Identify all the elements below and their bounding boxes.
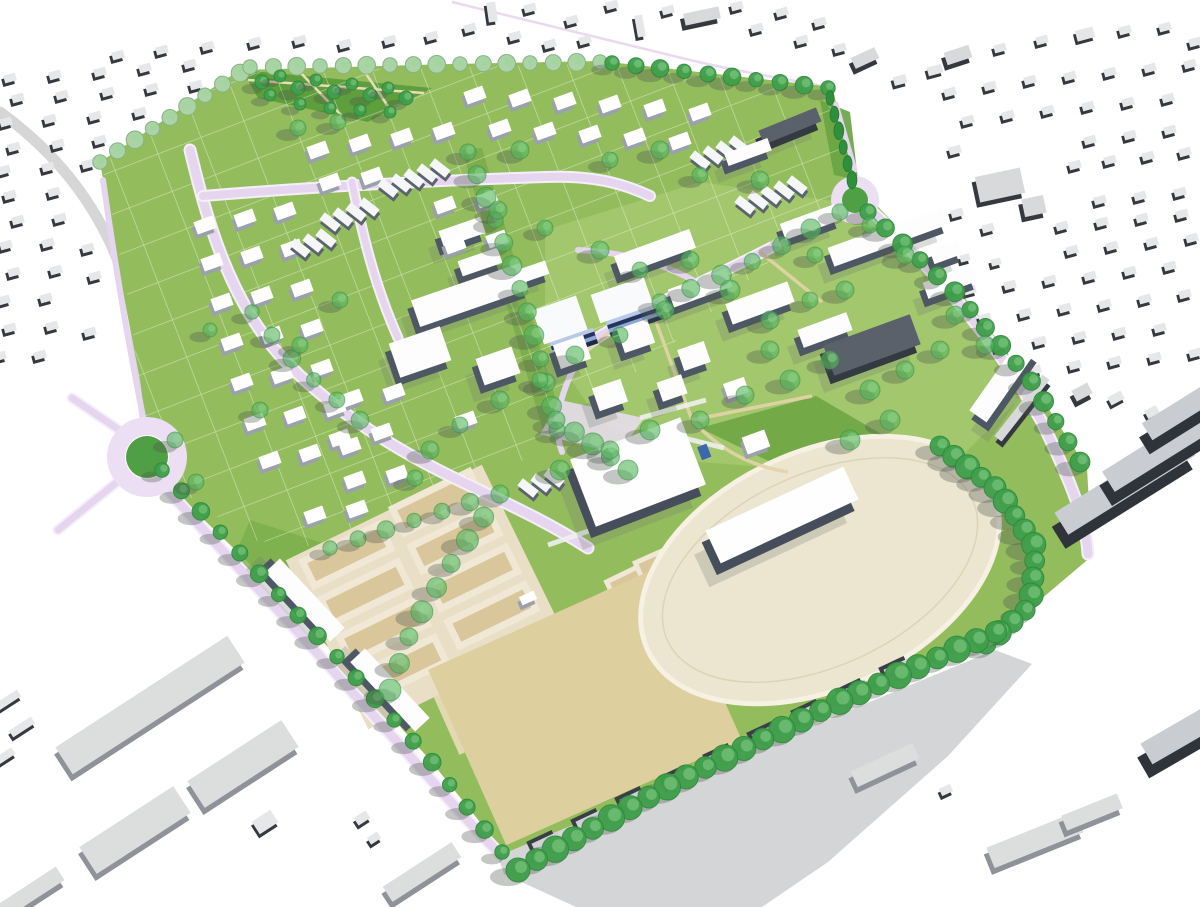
building-block bbox=[520, 3, 537, 17]
building-block bbox=[727, 1, 744, 15]
building-block bbox=[483, 1, 498, 25]
masterplan-svg-canvas bbox=[0, 0, 1200, 907]
building-block bbox=[978, 223, 995, 237]
building-block bbox=[364, 831, 382, 848]
building-block bbox=[0, 867, 67, 907]
building-block bbox=[1132, 696, 1200, 779]
building-block bbox=[36, 293, 53, 307]
building-block bbox=[1160, 125, 1177, 139]
building-block bbox=[505, 31, 522, 45]
building-block bbox=[958, 115, 975, 129]
building-block bbox=[810, 17, 827, 31]
building-block bbox=[1092, 217, 1109, 231]
building-block bbox=[1100, 155, 1117, 169]
building-block bbox=[658, 5, 675, 19]
building-block bbox=[936, 784, 954, 800]
building-block bbox=[1068, 382, 1095, 407]
building-block bbox=[152, 45, 169, 59]
building-block bbox=[1120, 266, 1137, 280]
building-block bbox=[78, 243, 95, 257]
building-block bbox=[1132, 213, 1149, 227]
building-block bbox=[1100, 67, 1117, 81]
building-block bbox=[245, 37, 262, 51]
building-block bbox=[1065, 360, 1082, 374]
building-block bbox=[1070, 331, 1087, 345]
aerial-masterplan-render bbox=[0, 0, 1200, 907]
building-block bbox=[85, 111, 102, 125]
building-block bbox=[1170, 187, 1187, 201]
building-block bbox=[46, 265, 63, 279]
building-block bbox=[7, 717, 37, 742]
building-block bbox=[1095, 299, 1112, 313]
building-block bbox=[0, 747, 17, 769]
building-block bbox=[575, 35, 592, 49]
building-block bbox=[1057, 793, 1125, 837]
building-block bbox=[351, 810, 372, 829]
building-block bbox=[945, 145, 962, 159]
building-block bbox=[1055, 303, 1072, 317]
building-block bbox=[4, 267, 21, 281]
building-block bbox=[142, 83, 159, 97]
building-block bbox=[45, 70, 62, 84]
building-block bbox=[971, 168, 1026, 208]
building-block bbox=[0, 323, 17, 337]
building-block bbox=[38, 238, 55, 252]
building-block bbox=[1080, 271, 1097, 285]
building-block bbox=[1038, 105, 1055, 119]
building-block bbox=[998, 110, 1015, 124]
building-block bbox=[940, 87, 957, 101]
building-block bbox=[1040, 275, 1057, 289]
building-block bbox=[249, 810, 280, 839]
building-block bbox=[679, 6, 722, 30]
building-block bbox=[422, 31, 439, 45]
building-block bbox=[1175, 289, 1192, 303]
building-block bbox=[85, 271, 102, 285]
building-block bbox=[1052, 221, 1069, 235]
building-block bbox=[1072, 26, 1096, 45]
building-block bbox=[1180, 59, 1197, 73]
building-block bbox=[379, 842, 465, 907]
building-block bbox=[1182, 233, 1199, 247]
building-block bbox=[1160, 261, 1177, 275]
building-block bbox=[1155, 22, 1172, 36]
building-block bbox=[1015, 308, 1032, 322]
building-block bbox=[1030, 336, 1047, 350]
building-block bbox=[1078, 101, 1095, 115]
building-block bbox=[51, 636, 247, 782]
building-block bbox=[0, 240, 14, 254]
building-block bbox=[90, 135, 107, 149]
building-block bbox=[631, 14, 646, 40]
building-block bbox=[0, 190, 17, 204]
building-block bbox=[198, 41, 215, 55]
building-block bbox=[1175, 147, 1192, 161]
building-block bbox=[772, 7, 789, 21]
building-block bbox=[1130, 191, 1147, 205]
building-block bbox=[0, 351, 8, 365]
building-block bbox=[460, 23, 477, 37]
building-block bbox=[1032, 35, 1049, 49]
building-block bbox=[562, 15, 579, 29]
building-block bbox=[0, 73, 17, 87]
building-block bbox=[183, 720, 301, 815]
building-block bbox=[1145, 352, 1162, 366]
building-block bbox=[924, 64, 944, 80]
building-block bbox=[1110, 327, 1127, 341]
building-block bbox=[90, 67, 107, 81]
building-block bbox=[540, 39, 557, 53]
building-block bbox=[1065, 160, 1082, 174]
building-block bbox=[602, 0, 619, 14]
building-block bbox=[1020, 75, 1037, 89]
building-block bbox=[130, 107, 147, 121]
building-block bbox=[80, 327, 97, 341]
building-block bbox=[1150, 323, 1167, 337]
building-block bbox=[792, 35, 809, 49]
building-block bbox=[0, 690, 23, 715]
building-block bbox=[990, 43, 1007, 57]
building-block bbox=[988, 257, 1003, 270]
building-block bbox=[1135, 294, 1152, 308]
building-block bbox=[947, 208, 964, 222]
building-block bbox=[940, 45, 974, 71]
building-block bbox=[1102, 241, 1119, 255]
building-block bbox=[40, 114, 57, 128]
building-block bbox=[1000, 280, 1017, 294]
building-block bbox=[8, 215, 25, 229]
building-block bbox=[135, 63, 152, 77]
roundabout bbox=[107, 417, 187, 497]
building-block bbox=[1185, 348, 1200, 362]
building-block bbox=[1120, 130, 1137, 144]
building-block bbox=[847, 47, 881, 75]
building-block bbox=[1080, 135, 1097, 149]
building-block bbox=[1138, 151, 1155, 165]
building-block bbox=[1118, 97, 1135, 111]
building-block bbox=[1185, 37, 1200, 51]
building-block bbox=[1105, 356, 1122, 370]
building-block bbox=[1062, 245, 1079, 259]
building-block bbox=[290, 35, 307, 49]
building-block bbox=[1158, 93, 1175, 107]
building-block bbox=[8, 93, 25, 107]
building-block bbox=[380, 35, 397, 49]
building-block bbox=[830, 43, 847, 57]
building-block bbox=[75, 786, 193, 881]
building-block bbox=[335, 39, 352, 53]
building-block bbox=[108, 50, 125, 64]
building-block bbox=[1140, 63, 1157, 77]
building-block bbox=[50, 213, 67, 227]
building-block bbox=[1142, 237, 1159, 251]
building-block bbox=[52, 90, 69, 104]
building-block bbox=[1090, 195, 1107, 209]
building-block bbox=[1060, 71, 1077, 85]
building-block bbox=[38, 162, 55, 176]
building-block bbox=[180, 59, 197, 73]
building-block bbox=[980, 81, 997, 95]
building-block bbox=[48, 139, 65, 153]
building-block bbox=[98, 87, 115, 101]
building-block bbox=[0, 165, 12, 179]
building-block bbox=[0, 295, 12, 309]
building-block bbox=[890, 74, 908, 90]
building-block bbox=[1172, 209, 1189, 223]
building-block bbox=[1017, 195, 1047, 222]
building-block bbox=[44, 187, 61, 201]
building-block bbox=[1115, 25, 1132, 39]
building-block bbox=[4, 142, 21, 156]
building-block bbox=[30, 350, 47, 364]
building-block bbox=[747, 23, 764, 37]
building-block bbox=[42, 321, 59, 335]
building-block bbox=[1105, 391, 1126, 410]
